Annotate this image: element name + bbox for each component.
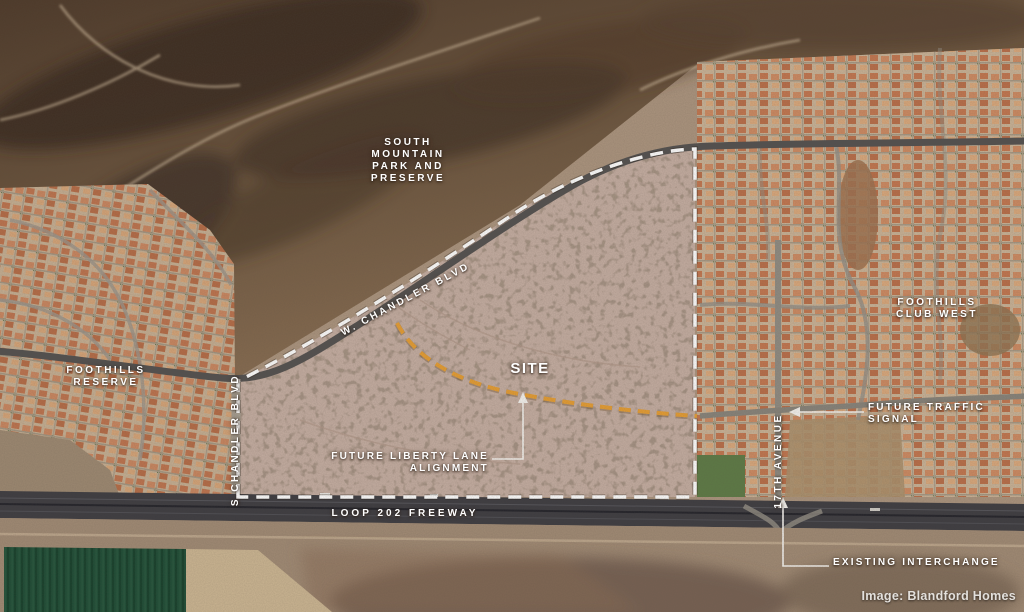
aerial-site-map: SOUTH MOUNTAIN PARK AND PRESERVE FOOTHIL… xyxy=(0,0,1024,612)
label-future-traffic-signal: FUTURE TRAFFIC SIGNAL xyxy=(868,402,985,426)
image-credit: Image: Blandford Homes xyxy=(861,589,1016,603)
label-site: SITE xyxy=(510,361,549,377)
label-s-chandler-blvd: S CHANDLER BLVD xyxy=(230,374,242,506)
label-17th-avenue: 17TH AVENUE xyxy=(773,413,785,508)
satellite-imagery xyxy=(0,0,1024,612)
photo-grain xyxy=(0,0,1024,612)
label-existing-interchange: EXISTING INTERCHANGE xyxy=(833,557,1000,569)
label-future-liberty-lane: FUTURE LIBERTY LANE ALIGNMENT xyxy=(331,451,489,475)
label-south-mountain-park: SOUTH MOUNTAIN PARK AND PRESERVE xyxy=(371,137,445,185)
label-foothills-reserve: FOOTHILLS RESERVE xyxy=(66,365,145,389)
label-loop-202-freeway: LOOP 202 FREEWAY xyxy=(332,508,479,520)
label-foothills-club-west: FOOTHILLS CLUB WEST xyxy=(896,297,978,321)
